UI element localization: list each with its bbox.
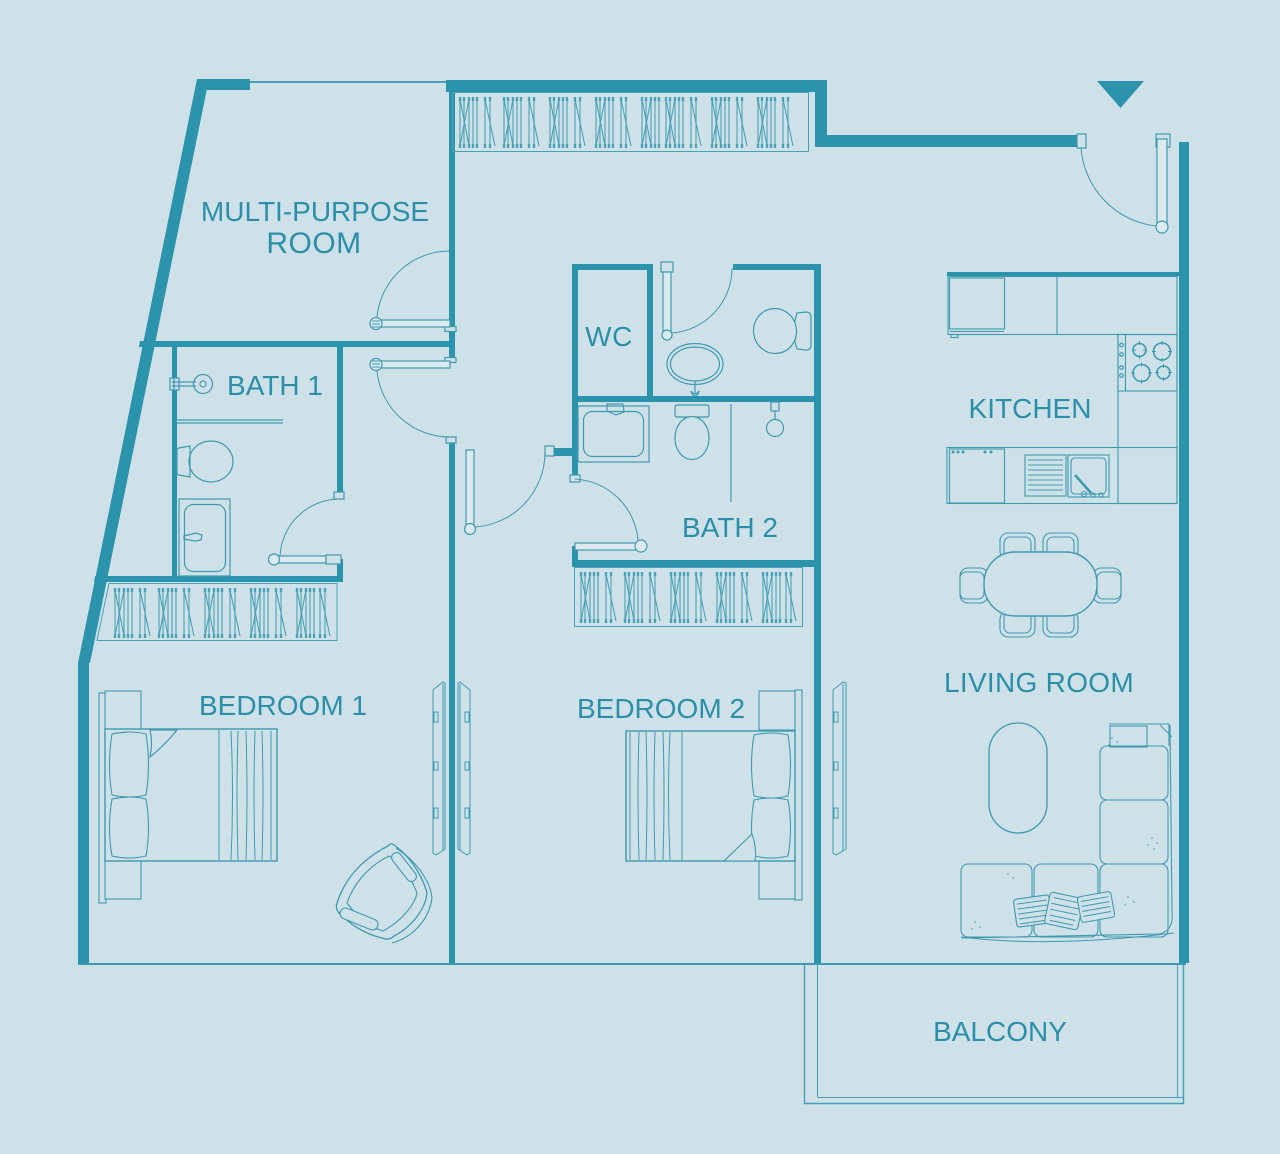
svg-text:BATH 2: BATH 2 <box>682 512 778 543</box>
svg-text:ROOM: ROOM <box>266 227 361 260</box>
svg-text:BALCONY: BALCONY <box>933 1016 1067 1047</box>
svg-text:BEDROOM 2: BEDROOM 2 <box>577 693 745 724</box>
svg-text:MULTI-PURPOSE: MULTI-PURPOSE <box>201 196 429 227</box>
svg-text:BEDROOM 1: BEDROOM 1 <box>199 690 367 721</box>
svg-text:BATH 1: BATH 1 <box>227 370 323 401</box>
svg-text:WC: WC <box>585 321 633 352</box>
svg-text:LIVING ROOM: LIVING ROOM <box>944 667 1134 698</box>
svg-text:KITCHEN: KITCHEN <box>969 393 1092 424</box>
